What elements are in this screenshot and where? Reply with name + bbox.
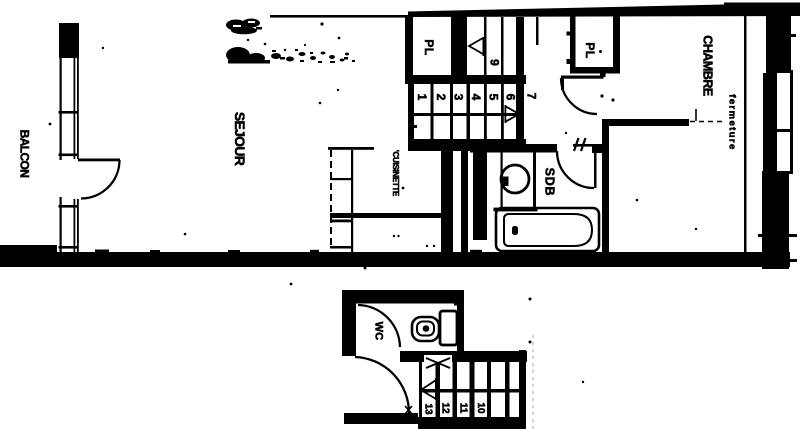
svg-text:7: 7 <box>525 93 539 100</box>
svg-text:6: 6 <box>504 94 518 101</box>
svg-text:10: 10 <box>475 402 486 414</box>
svg-text:2: 2 <box>434 94 448 101</box>
svg-text:CHAMBRE: CHAMBRE <box>701 35 715 96</box>
svg-text:4: 4 <box>469 94 483 101</box>
svg-text:PL: PL <box>583 42 597 58</box>
svg-text:SEJOUR: SEJOUR <box>232 112 248 166</box>
svg-text:12: 12 <box>440 402 451 414</box>
svg-text:5: 5 <box>487 94 501 101</box>
svg-text:WC: WC <box>373 322 385 341</box>
svg-text:'CUISINETTE: 'CUISINETTE <box>391 150 400 197</box>
svg-text:13: 13 <box>423 403 434 415</box>
svg-text:PL: PL <box>422 39 436 55</box>
svg-text:SDB: SDB <box>543 168 557 197</box>
svg-text:1: 1 <box>415 94 429 101</box>
svg-text:9: 9 <box>488 59 502 66</box>
svg-text:11: 11 <box>458 403 469 414</box>
svg-text:3: 3 <box>452 94 466 101</box>
svg-text:BALCON: BALCON <box>18 130 32 178</box>
svg-text:fermeture: fermeture <box>727 94 738 150</box>
